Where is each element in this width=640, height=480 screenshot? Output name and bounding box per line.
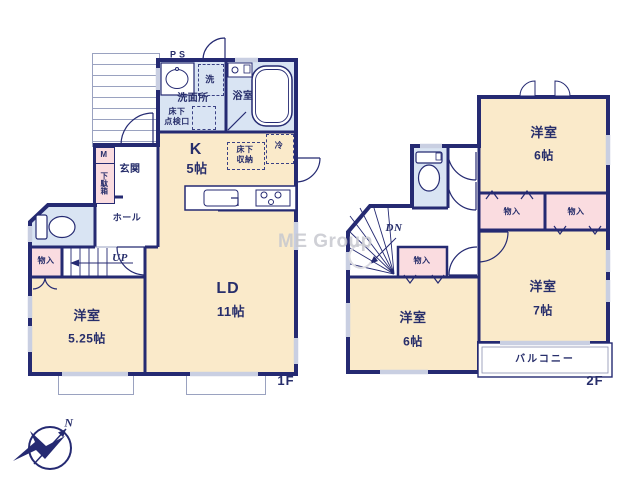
underfloor-hatch-box [192,106,216,130]
label-stairs-down: DN [386,222,403,236]
walls-2f [348,97,612,377]
label-fridge: 冷 [275,141,284,151]
toilet-2f-fixture [416,152,442,191]
label-pipe-space: PS [170,49,188,60]
label-bedroom1f-size: 5.25帖 [68,332,106,347]
label-closet-c: 物入 [414,256,431,266]
label-north: N [64,416,73,431]
label-living-size: 11帖 [217,304,245,320]
label-meter: M [100,150,107,160]
floorplan-page: PS 洗 洗面所 床下 点検口 浴室 K 5帖 冷 床下 収納 玄関 M 下駄箱… [0,0,640,480]
label-hall: ホール [113,212,142,223]
label-balcony: バルコニー [515,354,575,367]
label-shoe-box: 下駄箱 [99,172,108,195]
label-bedroom2f-east-size: 7帖 [533,304,553,319]
label-entrance: 玄関 [120,164,141,177]
label-bedroom2f-east-name: 洋室 [529,279,556,295]
label-bedroom1f-name: 洋室 [73,308,100,324]
label-bathroom: 浴室 [233,91,254,104]
closet-carets [404,191,601,283]
label-bedroom2f-south-size: 6帖 [403,335,423,350]
label-stairs-up: UP [112,252,128,266]
kitchen-counter [185,186,296,210]
label-bedroom2f-north-name: 洋室 [530,125,557,141]
casement-windows [520,81,570,96]
compass-icon [13,427,71,469]
label-floor2: 2F [586,373,603,389]
label-laundry: 洗 [205,74,215,85]
label-underfloor-storage: 床下 収納 [237,145,254,165]
watermark: ME Group [278,231,373,253]
label-storage-1f: 物入 [38,256,55,266]
label-closet-a: 物入 [504,207,521,217]
label-closet-b: 物入 [568,207,585,217]
label-floor1: 1F [277,373,294,389]
label-bedroom2f-north-size: 6帖 [534,149,554,164]
toilet-1f-fixture [36,215,75,239]
label-bedroom2f-south-name: 洋室 [399,310,426,326]
label-washroom: 洗面所 [177,93,209,106]
label-kitchen-name: K [190,140,203,160]
washroom-vanity [161,63,194,95]
label-living-name: LD [216,279,239,299]
label-underfloor-hatch: 床下 点検口 [164,107,190,127]
label-kitchen-size: 5帖 [186,161,207,177]
